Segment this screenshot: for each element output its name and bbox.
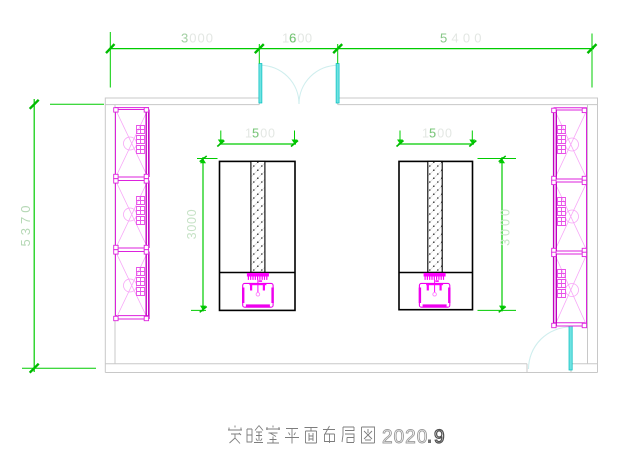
svg-text:6: 6 [289,31,296,46]
svg-text:5: 5 [440,31,447,46]
svg-text:3000: 3000 [499,206,513,246]
svg-text:2020: 2020 [382,427,428,448]
svg-text:5: 5 [252,127,259,141]
svg-text:9: 9 [434,427,445,448]
svg-text:5: 5 [429,127,436,141]
svg-text:5370: 5370 [18,202,33,247]
svg-text:1600: 1600 [282,31,313,46]
svg-text:1500: 1500 [422,127,453,141]
svg-text:1500: 1500 [245,127,276,141]
svg-text:3000: 3000 [185,209,199,240]
svg-text:3: 3 [181,31,188,46]
